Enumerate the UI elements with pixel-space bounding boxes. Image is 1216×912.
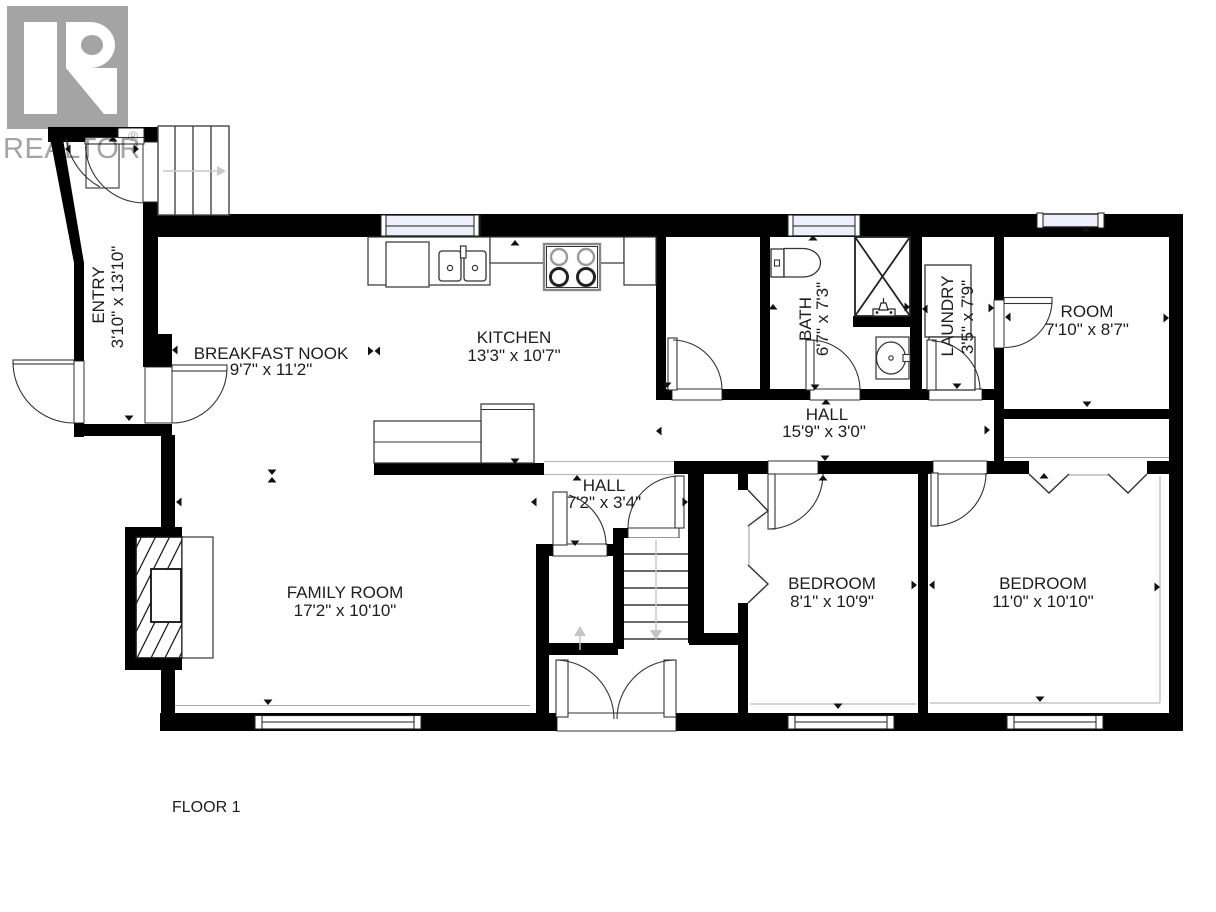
svg-text:11'0" x 10'10": 11'0" x 10'10" bbox=[992, 592, 1093, 611]
svg-text:KITCHEN: KITCHEN bbox=[477, 328, 552, 347]
svg-text:8'1" x 10'9": 8'1" x 10'9" bbox=[790, 592, 874, 611]
svg-text:®: ® bbox=[128, 128, 139, 144]
svg-text:9'7" x 11'2": 9'7" x 11'2" bbox=[230, 360, 313, 379]
svg-text:ENTRY: ENTRY bbox=[89, 266, 108, 323]
svg-text:3'10" x 13'10": 3'10" x 13'10" bbox=[108, 246, 127, 349]
svg-text:ROOM: ROOM bbox=[1061, 302, 1114, 321]
svg-text:7'2" x 3'4": 7'2" x 3'4" bbox=[567, 493, 641, 512]
svg-text:BEDROOM: BEDROOM bbox=[788, 574, 876, 593]
svg-text:13'3" x 10'7": 13'3" x 10'7" bbox=[467, 346, 560, 365]
svg-text:7'10" x 8'7": 7'10" x 8'7" bbox=[1045, 320, 1129, 339]
svg-text:BEDROOM: BEDROOM bbox=[999, 574, 1087, 593]
svg-text:FAMILY ROOM: FAMILY ROOM bbox=[287, 583, 404, 602]
svg-text:15'9" x 3'0": 15'9" x 3'0" bbox=[782, 422, 866, 441]
svg-text:6'7" x 7'3": 6'7" x 7'3" bbox=[813, 282, 832, 356]
svg-text:REALTOR: REALTOR bbox=[3, 133, 141, 165]
svg-text:3'5" x 7'9": 3'5" x 7'9" bbox=[958, 280, 977, 354]
svg-text:FLOOR 1: FLOOR 1 bbox=[172, 799, 241, 816]
svg-text:LAUNDRY: LAUNDRY bbox=[938, 276, 957, 357]
svg-text:17'2" x 10'10": 17'2" x 10'10" bbox=[294, 601, 397, 620]
